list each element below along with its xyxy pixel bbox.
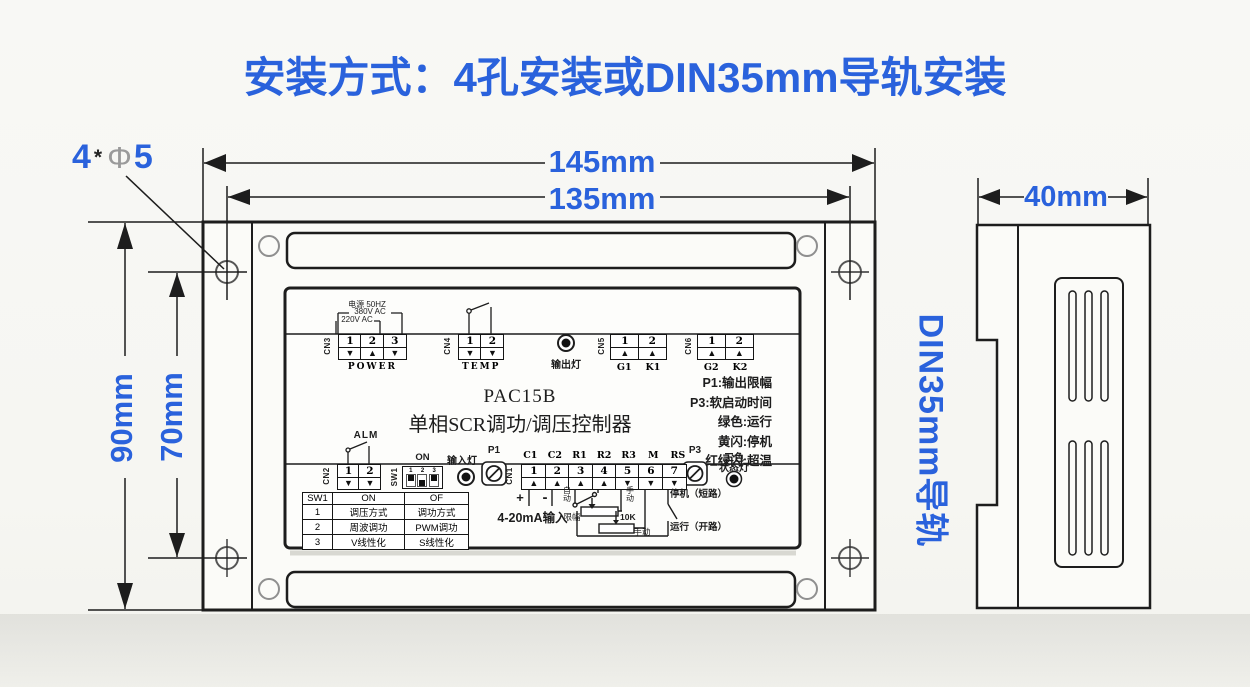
cn1-label: CN1 [505, 464, 515, 488]
terminal: 1▼ [337, 464, 360, 490]
pin-tag: R3 [616, 450, 641, 461]
p1-caption: P1 [482, 445, 506, 456]
terminal-arrow-icon: ▼ [337, 477, 360, 490]
hole-count: 4 [72, 138, 91, 177]
terminal: 1▼ [458, 334, 482, 360]
wiring-stop-note: 停机（短路） [670, 486, 760, 500]
cn6-terminals: 1▲ 2▲ [697, 334, 753, 360]
terminal-arrow-icon: ▼ [638, 477, 663, 490]
legend-line: 绿色:运行 [600, 413, 772, 433]
pin-tag: R2 [592, 450, 617, 461]
status-led-label-2: 状态灯 [711, 459, 757, 474]
cn4-label: CN4 [443, 334, 453, 358]
terminal-arrow-icon: ▲ [697, 347, 726, 360]
cn3-terminal-block: 1▼ 2▲ 3▼ POWER [338, 334, 407, 372]
terminal-arrow-icon: ▼ [458, 347, 482, 360]
table-header: OF [405, 493, 469, 505]
terminal-arrow-icon: ▲ [725, 347, 754, 360]
table-cell: S线性化 [405, 535, 469, 550]
dip-switch-3[interactable]: 3 [429, 468, 439, 487]
dip-switch-1[interactable]: 1 [406, 468, 416, 487]
asterisk-icon: * [94, 146, 102, 170]
sw1-function-table: SW1 ON OF 1 调压方式 调功方式 2 周波调功 PWM调功 3 V线性… [302, 492, 469, 550]
pin-tag: M [641, 450, 666, 461]
cn6-terminal-block: 1▲ 2▲ G2 K2 [697, 334, 754, 373]
terminal-arrow-icon: ▲ [610, 347, 639, 360]
bottom-cover-strip [287, 572, 795, 607]
cn3-label: CN3 [323, 334, 333, 358]
side-view-outline [977, 225, 1150, 608]
table-cell: 调功方式 [405, 505, 469, 520]
terminal: 1▼ [338, 334, 362, 360]
cn2-terminal-block: 1▼ 2▼ [337, 464, 381, 490]
dip-knob[interactable] [419, 480, 425, 486]
table-cell: 2 [303, 520, 333, 535]
terminal: 6▼ [638, 464, 663, 490]
top-cover-strip [287, 233, 795, 268]
terminal-arrow-icon: ▼ [358, 477, 381, 490]
table-cell: 3 [303, 535, 333, 550]
terminal: 3▼ [383, 334, 407, 360]
p3-caption: P3 [683, 445, 707, 456]
dimension-145mm: 145mm [540, 144, 664, 180]
terminal-arrow-icon: ▲ [592, 477, 617, 490]
cn4-caption: TEMP [462, 362, 500, 372]
cn5-pin-tags: G1 K1 [610, 362, 667, 373]
terminal: 2▲ [638, 334, 667, 360]
table-cell: 调压方式 [333, 505, 405, 520]
terminal-arrow-icon: ▼ [480, 347, 504, 360]
cn1-terminal-block: C1 C2 R1 R2 R3 M RS 1▲ 2▲ 3▲ 4▲ 5▼ 6▼ 7▼ [518, 450, 690, 490]
cn5-terminal-block: 1▲ 2▲ G1 K1 [610, 334, 667, 373]
plus-sign: + [513, 490, 527, 505]
hole-diameter: 5 [134, 138, 153, 177]
dimension-90mm: 90mm [104, 358, 140, 478]
terminal: 2▼ [358, 464, 381, 490]
dimension-135mm: 135mm [540, 181, 664, 217]
cn1-terminals: 1▲ 2▲ 3▲ 4▲ 5▼ 6▼ 7▼ [521, 464, 686, 490]
terminal: 4▲ [592, 464, 617, 490]
terminal: 1▲ [521, 464, 546, 490]
wiring-auto-label: 自动 [562, 487, 572, 503]
dip-switch-2[interactable]: 2 [417, 468, 427, 487]
dip-knob[interactable] [431, 475, 437, 481]
table-cell: 1 [303, 505, 333, 520]
table-cell: PWM调功 [405, 520, 469, 535]
table-cell: V线性化 [333, 535, 405, 550]
table-header-row: SW1 ON OF [303, 493, 469, 505]
table-cell: 周波调功 [333, 520, 405, 535]
terminal-arrow-icon: ▼ [383, 347, 407, 360]
pin-tag: R1 [567, 450, 592, 461]
diagram-canvas: 安装方式：4孔安装或DIN35mm导轨安装 4*Φ5 145mm 135mm 9… [0, 0, 1250, 687]
cn5-label: CN5 [597, 334, 607, 358]
table-row: 3 V线性化 S线性化 [303, 535, 469, 550]
wiring-resistor-label: 10K [620, 512, 646, 522]
cn3-terminals: 1▼ 2▲ 3▼ [338, 334, 407, 360]
output-led-label: 输出灯 [538, 356, 594, 371]
alm-caption: ALM [346, 430, 386, 441]
terminal-arrow-icon: ▲ [638, 347, 667, 360]
cn2-label: CN2 [322, 464, 332, 488]
pin-tag: K2 [726, 362, 755, 373]
cn4-terminal-block: 1▼ 2▼ TEMP [458, 334, 504, 372]
diameter-phi-icon: Φ [107, 140, 132, 176]
legend-line: P3:软启动时间 [600, 394, 772, 414]
page-title: 安装方式：4孔安装或DIN35mm导轨安装 [0, 44, 1250, 105]
table-header: SW1 [303, 493, 333, 505]
terminal: 2▼ [480, 334, 504, 360]
terminal-arrow-icon: ▲ [360, 347, 384, 360]
cn6-pin-tags: G2 K2 [697, 362, 754, 373]
table-row: 1 调压方式 调功方式 [303, 505, 469, 520]
side-profile [977, 225, 1150, 608]
pin-tag: K1 [639, 362, 668, 373]
wiring-manual-bottom-label: 手动 [630, 526, 654, 538]
minus-sign: - [538, 489, 552, 506]
terminal: 1▲ [610, 334, 639, 360]
wiring-limit-label: 限幅 [560, 511, 584, 523]
terminal: 2▲ [360, 334, 384, 360]
input-led-label: 输入灯 [436, 452, 488, 467]
table-header: ON [333, 493, 405, 505]
cn2-terminals: 1▼ 2▼ [337, 464, 381, 490]
cn5-terminals: 1▲ 2▲ [610, 334, 666, 360]
dip-knob[interactable] [408, 475, 414, 481]
dimension-40mm: 40mm [1016, 181, 1116, 214]
sw1-dip-switch[interactable]: 1 2 3 [402, 466, 443, 489]
sw1-label: SW1 [390, 465, 400, 489]
hole-spec-label: 4*Φ5 [72, 138, 153, 177]
din-rail-label: DIN35mm导轨 [910, 281, 959, 581]
cn1-pin-tags: C1 C2 R1 R2 R3 M RS [518, 450, 690, 461]
legend-line: P1:输出限幅 [600, 374, 772, 394]
cn4-terminals: 1▼ 2▼ [458, 334, 504, 360]
pin-tag: G2 [697, 362, 726, 373]
wiring-manual-top-label: 手动 [625, 487, 635, 503]
pin-tag: G1 [610, 362, 639, 373]
terminal: 2▲ [725, 334, 754, 360]
ext-145 [203, 148, 875, 223]
wiring-run-note: 运行（开路） [670, 519, 760, 533]
table-row: 2 周波调功 PWM调功 [303, 520, 469, 535]
cn6-label: CN6 [684, 334, 694, 358]
pin-tag: C2 [543, 450, 568, 461]
terminal: 1▲ [697, 334, 726, 360]
power-note-220v: 220V AC [320, 315, 394, 324]
pin-tag: C1 [518, 450, 543, 461]
cn3-caption: POWER [348, 362, 397, 372]
dimension-70mm: 70mm [154, 357, 190, 477]
terminal-arrow-icon: ▼ [338, 347, 362, 360]
